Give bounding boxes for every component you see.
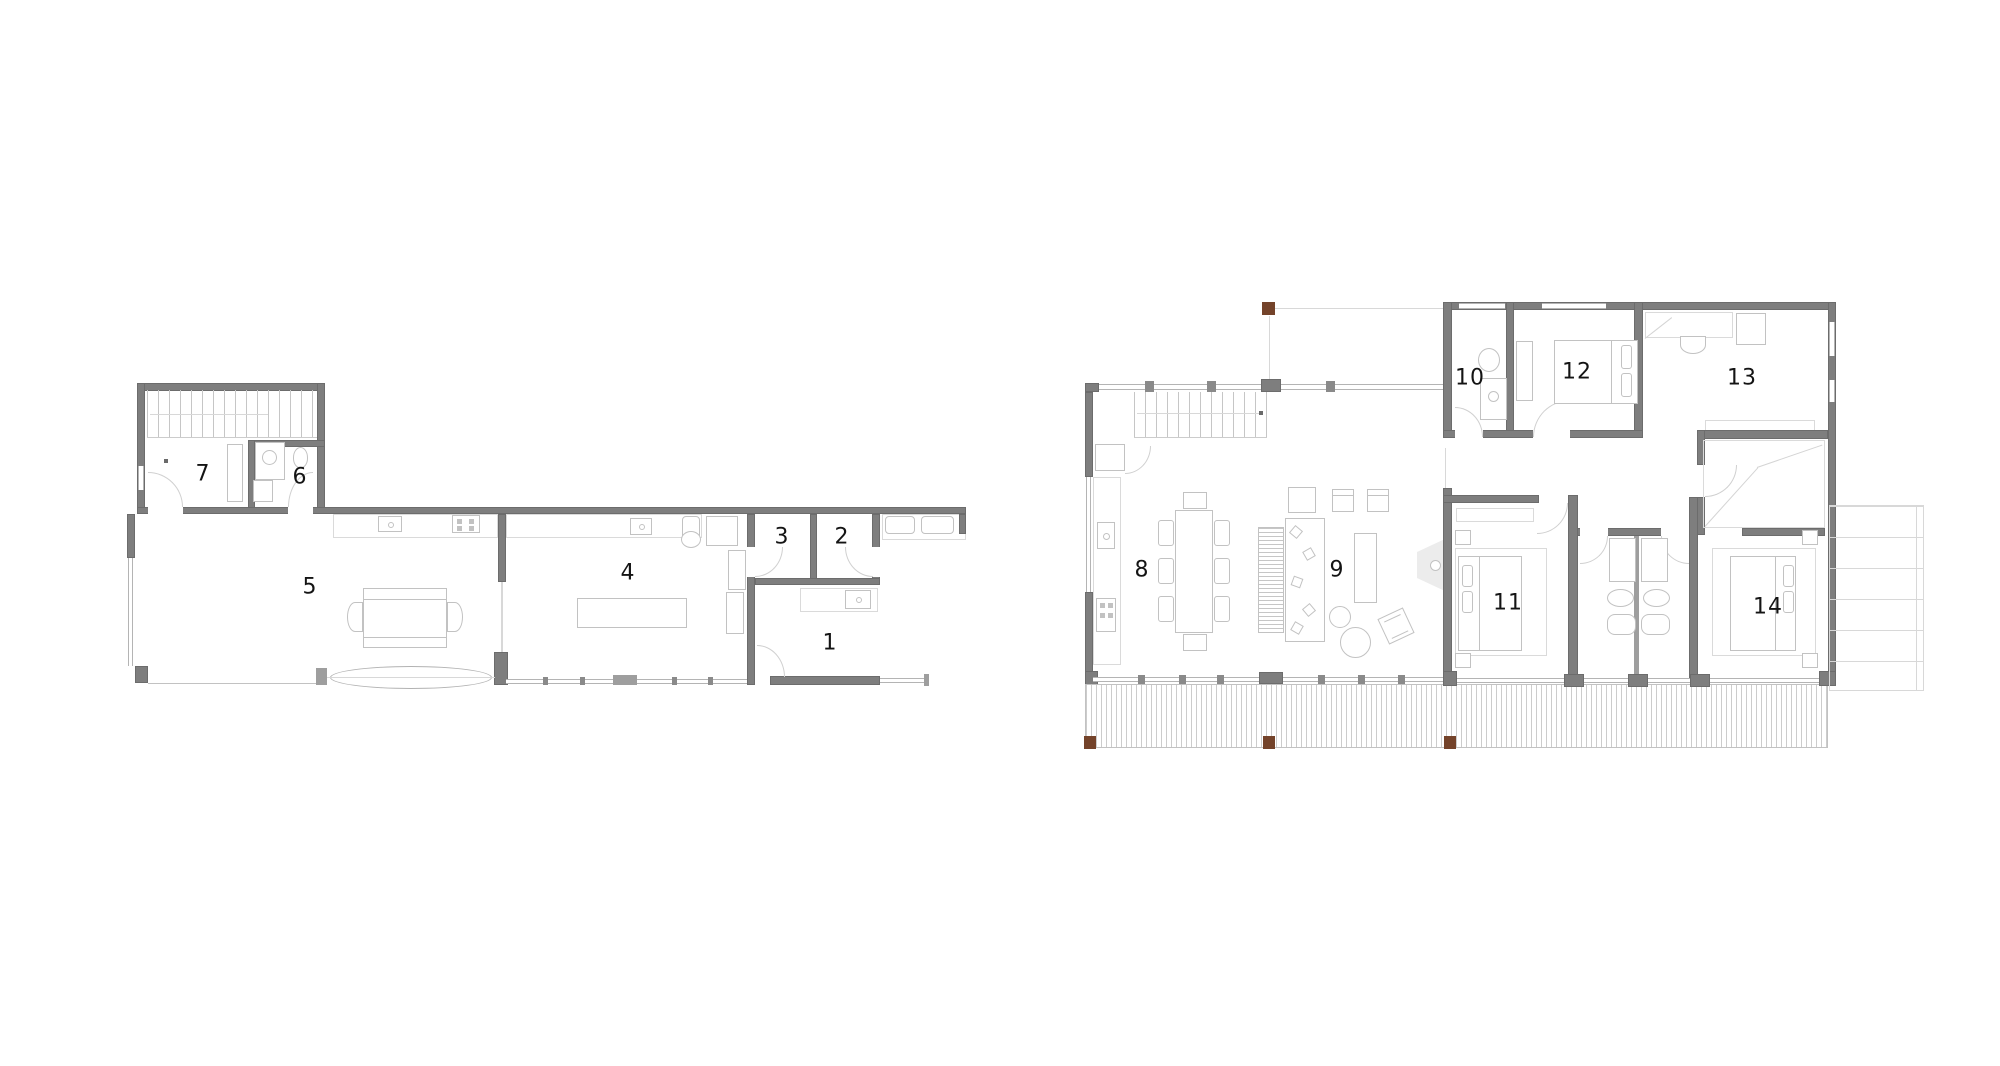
faucet-icon xyxy=(1103,533,1110,540)
desk-icon xyxy=(1645,312,1733,338)
mullion xyxy=(1145,381,1154,392)
sink-icon xyxy=(262,450,277,465)
fixture-bowl-icon xyxy=(681,531,701,548)
sink-icon xyxy=(1607,589,1634,607)
door-opening xyxy=(872,547,880,577)
window xyxy=(1459,303,1505,309)
sliding-door-icon xyxy=(1259,672,1283,684)
island-table-icon xyxy=(577,598,687,628)
door-opening xyxy=(148,506,183,515)
stair-runner-line xyxy=(1137,413,1263,414)
sink-icon xyxy=(1643,589,1670,607)
cabinet-icon xyxy=(1736,313,1766,345)
door-arc xyxy=(1580,536,1608,564)
mullion xyxy=(1217,675,1224,684)
kitchen-counter xyxy=(1093,477,1121,665)
window xyxy=(1542,303,1606,309)
sofa-icon xyxy=(1285,518,1325,642)
cabinet-icon xyxy=(706,516,738,546)
room-label: 3 xyxy=(775,525,790,550)
window-cap xyxy=(924,674,929,686)
wall xyxy=(1568,495,1578,682)
chair-icon xyxy=(1214,558,1230,584)
bathtub-icon xyxy=(1607,614,1636,635)
wardrobe-icon xyxy=(227,444,243,502)
sliding-door-icon xyxy=(1261,379,1281,392)
wall xyxy=(747,514,755,685)
mullion xyxy=(1318,675,1325,684)
room-label: 13 xyxy=(1727,366,1757,391)
room-label: 2 xyxy=(835,525,850,550)
wall xyxy=(1443,488,1452,682)
door-arc xyxy=(1125,446,1151,474)
pillow-icon xyxy=(1462,565,1473,587)
nightstand-icon xyxy=(1455,653,1471,668)
wardrobe-icon xyxy=(1516,341,1533,401)
wall-post xyxy=(135,666,148,683)
mullion xyxy=(1207,381,1216,392)
wall xyxy=(137,383,145,514)
door-arc xyxy=(1533,400,1570,437)
dining-table-icon xyxy=(1175,510,1213,633)
room-label: 12 xyxy=(1562,360,1592,385)
armchair-icon xyxy=(1332,489,1354,512)
mullion xyxy=(1358,675,1365,684)
chair-icon xyxy=(1183,492,1207,509)
room-label: 4 xyxy=(621,561,636,586)
stair-dot xyxy=(164,459,168,463)
chair-icon xyxy=(1158,596,1174,622)
door-arc xyxy=(1537,503,1568,534)
mullion xyxy=(543,677,548,685)
chair-icon xyxy=(447,602,463,632)
stairs-icon xyxy=(1134,392,1267,438)
window xyxy=(880,678,926,683)
door-opening xyxy=(288,506,313,515)
deck xyxy=(1085,684,1828,748)
sink-icon xyxy=(378,516,402,532)
mullion xyxy=(1179,675,1186,684)
mullion xyxy=(1326,381,1335,392)
post xyxy=(1444,736,1456,749)
window xyxy=(1086,477,1091,592)
lounge-chair-icon xyxy=(1377,607,1414,644)
window xyxy=(1710,678,1819,683)
bathtub-icon xyxy=(1641,614,1670,635)
room-label: 10 xyxy=(1455,366,1485,391)
wall-post xyxy=(1690,674,1710,687)
steps-edge-line xyxy=(1916,506,1917,690)
wall-post xyxy=(1443,671,1457,686)
kitchen-counter xyxy=(506,514,702,538)
faucet-icon xyxy=(856,597,862,603)
pouf-icon xyxy=(1329,606,1351,628)
wall xyxy=(1689,497,1698,682)
pillow-icon xyxy=(1783,565,1794,587)
window xyxy=(1648,678,1690,683)
mullion xyxy=(1398,675,1405,684)
wall xyxy=(755,578,880,585)
wall xyxy=(1085,383,1099,392)
room-label: 9 xyxy=(1330,558,1345,583)
window xyxy=(1584,678,1628,683)
door-arc xyxy=(148,472,183,507)
vanity-icon xyxy=(1641,538,1668,582)
door-arc xyxy=(845,547,873,577)
chair-icon xyxy=(1158,558,1174,584)
wall-post xyxy=(1628,674,1648,687)
desk-chair-icon xyxy=(1680,336,1706,354)
wall xyxy=(1697,430,1828,439)
room-label: 7 xyxy=(196,462,211,487)
chair-icon xyxy=(1214,520,1230,546)
closet-icon xyxy=(1095,444,1125,471)
room-label: 14 xyxy=(1753,595,1783,620)
stair-dot xyxy=(1259,411,1263,415)
wall xyxy=(248,440,255,514)
room-label: 6 xyxy=(293,465,308,490)
stove-icon xyxy=(452,515,480,533)
wall xyxy=(1506,302,1514,438)
floor-plan-image: 1 2 3 4 5 6 7 xyxy=(0,0,2000,1066)
post xyxy=(1263,736,1275,749)
sink-icon xyxy=(1097,522,1115,549)
wall xyxy=(1443,495,1539,503)
door-arc xyxy=(1455,407,1483,437)
chair-icon xyxy=(1158,520,1174,546)
wall xyxy=(1085,392,1093,477)
sink-icon xyxy=(845,590,871,609)
sliding-door-icon xyxy=(613,675,637,685)
exterior-steps xyxy=(1829,505,1924,691)
door-arc xyxy=(755,547,783,577)
shower-icon xyxy=(253,480,273,502)
room-label: 8 xyxy=(1135,558,1150,583)
wall xyxy=(137,507,966,514)
wall xyxy=(317,383,325,514)
wall xyxy=(1085,592,1093,676)
cabinet-icon xyxy=(726,592,744,634)
coffee-table-icon xyxy=(1354,533,1377,603)
closet-icon xyxy=(1456,508,1534,522)
mullion xyxy=(672,677,677,685)
pillow-icon xyxy=(1783,591,1794,613)
side-table-icon xyxy=(1288,487,1316,513)
room-label: 5 xyxy=(303,575,318,600)
wall xyxy=(1443,302,1452,438)
window xyxy=(1829,322,1835,356)
nightstand-icon xyxy=(1802,653,1818,668)
room-label: 11 xyxy=(1493,591,1523,616)
fridge-icon xyxy=(728,550,746,590)
dryer-icon xyxy=(921,516,954,534)
wall xyxy=(810,514,817,585)
mullion xyxy=(708,677,713,685)
pillow-icon xyxy=(1621,373,1632,397)
chair-icon xyxy=(1183,634,1207,651)
nightstand-icon xyxy=(1455,530,1471,545)
armchair-icon xyxy=(1367,489,1389,512)
window xyxy=(1457,678,1564,683)
faucet-icon xyxy=(639,524,645,530)
chair-icon xyxy=(1214,596,1230,622)
wall xyxy=(959,514,966,534)
wall xyxy=(770,676,880,685)
window xyxy=(138,466,144,490)
wall xyxy=(498,514,506,582)
wall-post xyxy=(1564,674,1584,687)
bench-icon xyxy=(1258,527,1284,633)
vanity-icon xyxy=(1609,538,1636,582)
mullion xyxy=(580,677,585,685)
sink-icon xyxy=(630,518,652,535)
hammock-line xyxy=(327,677,495,678)
wall xyxy=(127,514,135,558)
hammock-post xyxy=(316,668,327,685)
washer-icon xyxy=(885,516,915,534)
mullion xyxy=(1138,675,1145,684)
door-opening xyxy=(747,547,755,577)
stove-icon xyxy=(1096,598,1116,632)
window xyxy=(501,582,503,652)
closet-outline xyxy=(1703,440,1825,528)
sink-icon xyxy=(1488,391,1499,402)
pillow-icon xyxy=(1621,345,1632,369)
pouf-icon xyxy=(1340,627,1371,658)
nightstand-icon xyxy=(1802,530,1818,545)
door-arc xyxy=(757,645,785,677)
stair-runner-line xyxy=(150,414,268,415)
chair-icon xyxy=(347,602,363,632)
fireplace-dot xyxy=(1430,560,1441,571)
overhang-line xyxy=(1275,308,1443,309)
pillow-icon xyxy=(1462,591,1473,613)
table-icon xyxy=(363,588,447,648)
faucet-icon xyxy=(388,522,394,528)
room-label: 1 xyxy=(823,631,838,656)
floor-edge-line xyxy=(148,683,318,684)
window xyxy=(1829,380,1835,402)
post xyxy=(1262,302,1275,315)
window xyxy=(128,558,133,666)
opening-line xyxy=(1445,448,1446,488)
overhang-line xyxy=(1269,316,1270,384)
post xyxy=(1084,736,1096,749)
